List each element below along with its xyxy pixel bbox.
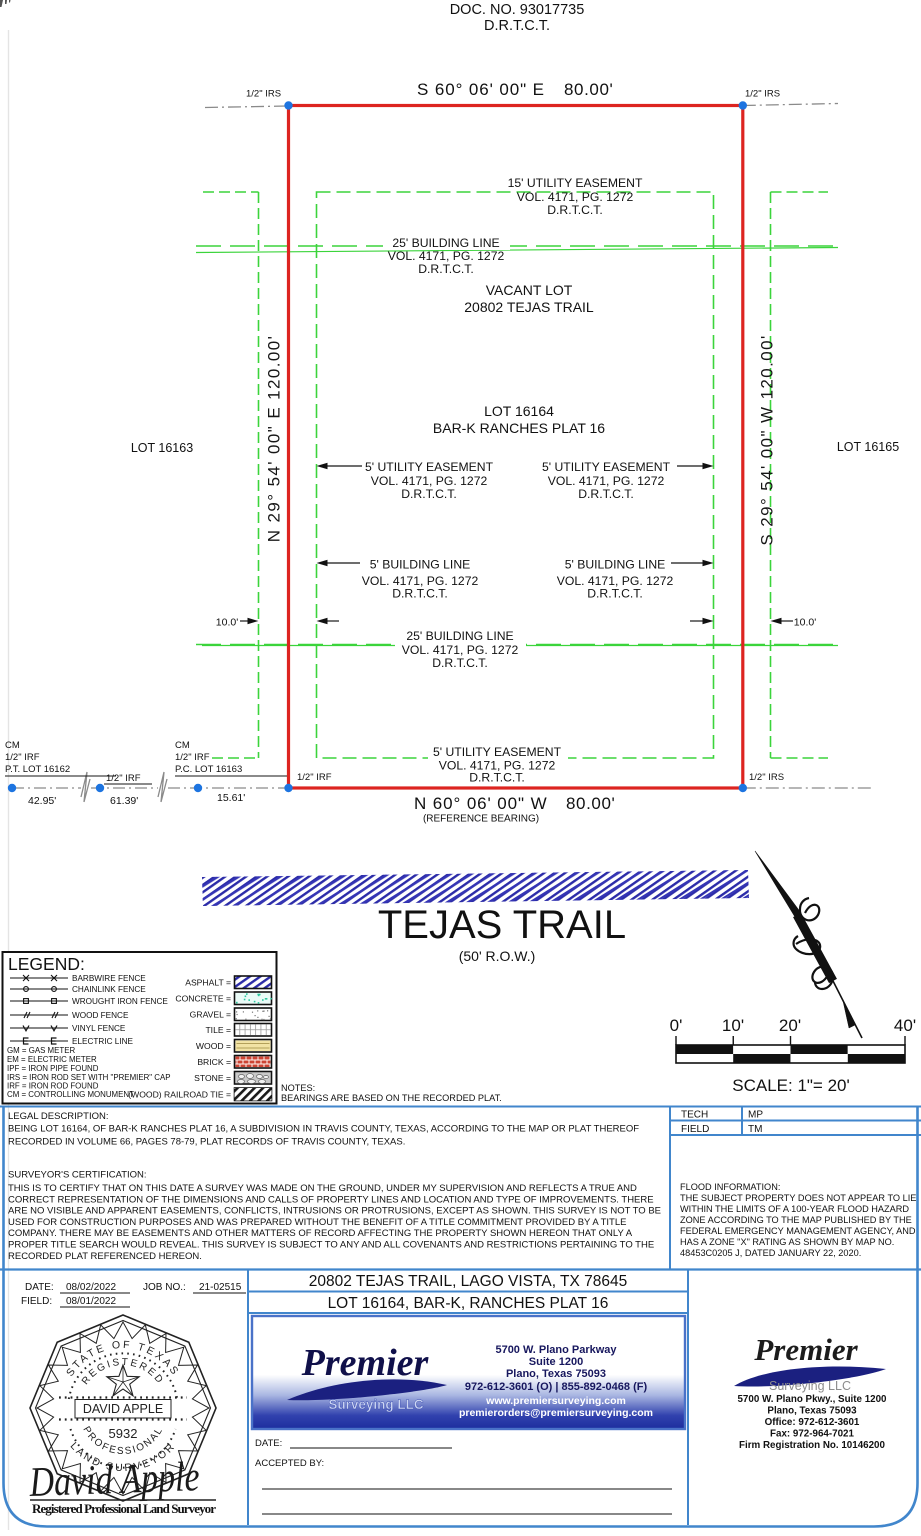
svg-text:MP: MP	[748, 1110, 763, 1121]
svg-text:61.39': 61.39'	[110, 795, 138, 807]
svg-text:(REFERENCE BEARING): (REFERENCE BEARING)	[423, 814, 539, 825]
svg-text:48453C0205 J, DATED JANUARY 22: 48453C0205 J, DATED JANUARY 22, 2020.	[680, 1248, 861, 1258]
svg-text:40': 40'	[894, 1016, 916, 1035]
svg-text:CM: CM	[175, 740, 190, 751]
svg-text:P.C. LOT 16163: P.C. LOT 16163	[175, 764, 242, 775]
svg-text:5' BUILDING LINE: 5' BUILDING LINE	[370, 558, 471, 572]
svg-text:GRAVEL =: GRAVEL =	[190, 1010, 231, 1020]
svg-text:JOB NO.:: JOB NO.:	[143, 1282, 186, 1293]
svg-text:COMPANY. THERE MAY BE EASEMEN: COMPANY. THERE MAY BE EASEMENTS AND OTHE…	[8, 1228, 633, 1239]
svg-text:THIS IS TO CERTIFY THAT ON THI: THIS IS TO CERTIFY THAT ON THIS DATE A S…	[8, 1183, 637, 1194]
svg-text:1/2" IRF: 1/2" IRF	[297, 772, 332, 783]
svg-text:LOT 16164, BAR-K, RANCHES PLAT: LOT 16164, BAR-K, RANCHES PLAT 16	[328, 1295, 609, 1312]
svg-text:5932: 5932	[109, 1426, 138, 1441]
svg-text:S 60° 06' 00" E: S 60° 06' 00" E	[417, 80, 545, 99]
svg-text:VOL. 4171, PG. 1272: VOL. 4171, PG. 1272	[388, 249, 505, 263]
svg-text:80.00': 80.00'	[566, 794, 615, 813]
svg-text:LEGAL DESCRIPTION:: LEGAL DESCRIPTION:	[8, 1111, 108, 1122]
svg-text:08/02/2022: 08/02/2022	[66, 1282, 116, 1293]
svg-text:RECORDED IN VOLUME 66, PAGES 7: RECORDED IN VOLUME 66, PAGES 78-79, PLAT…	[8, 1137, 405, 1148]
svg-text:10.0': 10.0'	[794, 617, 816, 629]
svg-text:20802 TEJAS TRAIL, LAGO VISTA,: 20802 TEJAS TRAIL, LAGO VISTA, TX 78645	[309, 1273, 628, 1290]
svg-text:972-612-3601 (O) | 855-892-046: 972-612-3601 (O) | 855-892-0468 (F)	[465, 1381, 648, 1393]
svg-text:D.R.T.C.T.: D.R.T.C.T.	[469, 771, 525, 785]
svg-text:5' BUILDING LINE: 5' BUILDING LINE	[565, 558, 666, 572]
svg-text:20802 TEJAS TRAIL: 20802 TEJAS TRAIL	[464, 299, 594, 315]
svg-text:SURVEYOR'S CERTIFICATION:: SURVEYOR'S CERTIFICATION:	[8, 1170, 147, 1181]
svg-text:FLOOD INFORMATION:: FLOOD INFORMATION:	[680, 1182, 780, 1192]
svg-text:5' UTILITY EASEMENT: 5' UTILITY EASEMENT	[365, 460, 494, 474]
svg-text:premierorders@premiersurveying: premierorders@premiersurveying.com	[459, 1407, 653, 1419]
svg-text:P.T. LOT 16162: P.T. LOT 16162	[5, 764, 70, 775]
svg-text:Surveying LLC: Surveying LLC	[328, 1397, 424, 1412]
svg-text:Suite 1200: Suite 1200	[529, 1356, 583, 1368]
svg-text:1/2" IRS: 1/2" IRS	[749, 772, 784, 783]
svg-text:TEJAS TRAIL: TEJAS TRAIL	[378, 903, 626, 947]
svg-text:SCALE: 1"= 20': SCALE: 1"= 20'	[732, 1076, 850, 1095]
svg-text:ASPHALT =: ASPHALT =	[185, 978, 231, 988]
svg-text:D.R.T.C.T.: D.R.T.C.T.	[392, 587, 448, 601]
svg-text:DATE:: DATE:	[25, 1282, 54, 1293]
svg-text:1/2" IRF: 1/2" IRF	[106, 773, 141, 784]
svg-text:(WOOD) RAILROAD TIE =: (WOOD) RAILROAD TIE =	[128, 1090, 231, 1100]
svg-text:Plano, Texas 75093: Plano, Texas 75093	[767, 1406, 857, 1417]
svg-text:ACCEPTED BY:: ACCEPTED BY:	[255, 1458, 324, 1469]
svg-text:VOL. 4171, PG. 1272: VOL. 4171, PG. 1272	[517, 190, 634, 204]
svg-text:LEGEND:: LEGEND:	[8, 954, 85, 974]
svg-text:5700 W. Plano Parkway: 5700 W. Plano Parkway	[495, 1344, 617, 1356]
svg-text:D.R.T.C.T.: D.R.T.C.T.	[547, 203, 603, 217]
svg-text:BEING LOT 16164, OF BAR-K RANC: BEING LOT 16164, OF BAR-K RANCHES PLAT 1…	[8, 1124, 639, 1135]
svg-text:CONCRETE =: CONCRETE =	[175, 994, 231, 1004]
svg-text:10': 10'	[722, 1016, 744, 1035]
svg-text:S 29° 54' 00" W 120.00': S 29° 54' 00" W 120.00'	[758, 334, 777, 545]
svg-text:CORRECT REPRESENTATION OF THE: CORRECT REPRESENTATION OF THE DIMENSIONS…	[8, 1194, 654, 1205]
svg-text:5700 W. Plano Pkwy., Suite 120: 5700 W. Plano Pkwy., Suite 1200	[737, 1394, 887, 1405]
svg-text:BEARINGS ARE BASED ON THE RECO: BEARINGS ARE BASED ON THE RECORDED PLAT.	[281, 1093, 502, 1103]
svg-text:1/2" IRF: 1/2" IRF	[5, 752, 40, 763]
svg-text:FIELD: FIELD	[681, 1124, 709, 1135]
svg-text:CM: CM	[5, 740, 20, 751]
svg-text:08/01/2022: 08/01/2022	[66, 1296, 116, 1307]
svg-text:EM = ELECTRIC METER: EM = ELECTRIC METER	[7, 1055, 97, 1064]
svg-text:25' BUILDING LINE: 25' BUILDING LINE	[392, 236, 499, 250]
svg-text:RECORDED PLAT REFERENCED HEREO: RECORDED PLAT REFERENCED HEREON.	[8, 1251, 202, 1262]
svg-text:TECH: TECH	[681, 1110, 708, 1121]
svg-text:Plano, Texas 75093: Plano, Texas 75093	[506, 1368, 606, 1380]
svg-text:5' UTILITY EASEMENT: 5' UTILITY EASEMENT	[433, 745, 562, 759]
svg-text:5' UTILITY EASEMENT: 5' UTILITY EASEMENT	[542, 460, 671, 474]
svg-text:D.R.T.C.T.: D.R.T.C.T.	[418, 262, 474, 276]
svg-text:LOT 16164: LOT 16164	[484, 403, 554, 419]
svg-text:42.95': 42.95'	[28, 795, 56, 807]
svg-text:VOL. 4171, PG. 1272: VOL. 4171, PG. 1272	[402, 643, 519, 657]
svg-text:VINYL FENCE: VINYL FENCE	[72, 1024, 126, 1033]
svg-text:IPF = IRON PIPE FOUND: IPF = IRON PIPE FOUND	[7, 1064, 99, 1073]
svg-text:20': 20'	[779, 1016, 801, 1035]
svg-text:WOOD FENCE: WOOD FENCE	[72, 1011, 129, 1020]
svg-text:VACANT LOT: VACANT LOT	[486, 282, 573, 298]
svg-text:1/2" IRS: 1/2" IRS	[246, 89, 281, 100]
svg-text:1/2" IRS: 1/2" IRS	[745, 89, 780, 100]
svg-text:D.R.T.C.T.: D.R.T.C.T.	[401, 487, 457, 501]
svg-text:WOOD =: WOOD =	[196, 1041, 231, 1051]
svg-text:CHAINLINK FENCE: CHAINLINK FENCE	[72, 985, 146, 994]
svg-text:ELECTRIC LINE: ELECTRIC LINE	[72, 1037, 134, 1046]
svg-text:15' UTILITY EASEMENT: 15' UTILITY EASEMENT	[508, 176, 643, 190]
svg-text:BRICK =: BRICK =	[197, 1057, 231, 1067]
svg-text:TILE =: TILE =	[205, 1025, 231, 1035]
svg-text:FEDERAL EMERGENCY MANAGEMENT A: FEDERAL EMERGENCY MANAGEMENT AGENCY, AND	[680, 1226, 916, 1236]
svg-text:DATE:: DATE:	[255, 1438, 282, 1449]
svg-text:USED FOR CONSTRUCTION PURPOSES: USED FOR CONSTRUCTION PURPOSES AND WAS P…	[8, 1217, 626, 1228]
svg-text:1/2" IRF: 1/2" IRF	[175, 752, 210, 763]
svg-text:TM: TM	[748, 1124, 762, 1135]
svg-text:LOT 16163: LOT 16163	[131, 441, 193, 455]
svg-text:Surveying LLC: Surveying LLC	[769, 1379, 851, 1393]
svg-text:N 60° 06' 00" W: N 60° 06' 00" W	[414, 794, 548, 813]
svg-text:Premier: Premier	[753, 1332, 858, 1367]
svg-text:(50' R.O.W.): (50' R.O.W.)	[459, 948, 536, 964]
svg-text:DOC. NO. 93017735: DOC. NO. 93017735	[450, 2, 585, 18]
svg-text:GM = GAS METER: GM = GAS METER	[7, 1046, 75, 1055]
svg-text:David Apple: David Apple	[28, 1454, 200, 1506]
svg-text:STONE =: STONE =	[194, 1073, 231, 1083]
svg-text:Office: 972-612-3601: Office: 972-612-3601	[765, 1417, 860, 1428]
svg-text:ZONE ACCORDING TO THE MAP PUBL: ZONE ACCORDING TO THE MAP PUBLISHED BY T…	[680, 1215, 912, 1225]
svg-text:D.R.T.C.T.: D.R.T.C.T.	[484, 18, 550, 34]
svg-text:N 29° 54' 00" E 120.00': N 29° 54' 00" E 120.00'	[265, 335, 284, 542]
svg-text:DAVID APPLE: DAVID APPLE	[83, 1402, 163, 1416]
svg-text:HAS A ZONE "X" RATING AS SHOWN: HAS A ZONE "X" RATING AS SHOWN BY MAP NO…	[680, 1237, 894, 1247]
svg-text:Fax: 972-964-7021: Fax: 972-964-7021	[770, 1429, 854, 1440]
svg-text:VOL. 4171, PG. 1272: VOL. 4171, PG. 1272	[548, 474, 665, 488]
svg-text:25' BUILDING LINE: 25' BUILDING LINE	[406, 629, 513, 643]
svg-text:0': 0'	[670, 1016, 683, 1035]
svg-text:ARE NO VISIBLE AND APPARENT EA: ARE NO VISIBLE AND APPARENT EASEMENTS, C…	[8, 1206, 661, 1217]
svg-text:D.R.T.C.T.: D.R.T.C.T.	[432, 656, 488, 670]
svg-text:THE SUBJECT PROPERTY DOES NOT: THE SUBJECT PROPERTY DOES NOT APPEAR TO …	[680, 1193, 916, 1203]
svg-text:LOT 16165: LOT 16165	[837, 440, 899, 454]
svg-text:FIELD:: FIELD:	[21, 1296, 52, 1307]
svg-text:BAR-K RANCHES PLAT 16: BAR-K RANCHES PLAT 16	[433, 420, 605, 436]
svg-text:VOL. 4171, PG. 1272: VOL. 4171, PG. 1272	[371, 474, 488, 488]
svg-text:80.00': 80.00'	[564, 80, 613, 99]
svg-text:D.R.T.C.T.: D.R.T.C.T.	[578, 487, 634, 501]
svg-text:PROPER TITLE SEARCH WOULD REVE: PROPER TITLE SEARCH WOULD REVEAL. THIS S…	[8, 1240, 654, 1251]
svg-text:Registered Professional Land S: Registered Professional Land Surveyor	[32, 1501, 216, 1516]
svg-text:21-02515: 21-02515	[199, 1282, 242, 1293]
svg-text:NOTES:: NOTES:	[281, 1083, 315, 1093]
svg-text:Premier: Premier	[301, 1342, 430, 1384]
svg-text:BARBWIRE FENCE: BARBWIRE FENCE	[72, 974, 146, 983]
svg-text:www.premiersurveying.com: www.premiersurveying.com	[485, 1395, 626, 1407]
svg-text:Firm Registration No. 10146200: Firm Registration No. 10146200	[739, 1440, 885, 1451]
svg-text:10.0': 10.0'	[216, 617, 238, 629]
svg-text:15.61': 15.61'	[217, 792, 245, 804]
svg-text:CM = CONTROLLING MONUMENT: CM = CONTROLLING MONUMENT	[7, 1090, 134, 1099]
svg-text:D.R.T.C.T.: D.R.T.C.T.	[587, 587, 643, 601]
svg-text:WITHIN THE LIMITS OF A 100-YEA: WITHIN THE LIMITS OF A 100-YEAR FLOOD HA…	[680, 1204, 909, 1214]
svg-text:WROUGHT IRON FENCE: WROUGHT IRON FENCE	[72, 997, 168, 1006]
